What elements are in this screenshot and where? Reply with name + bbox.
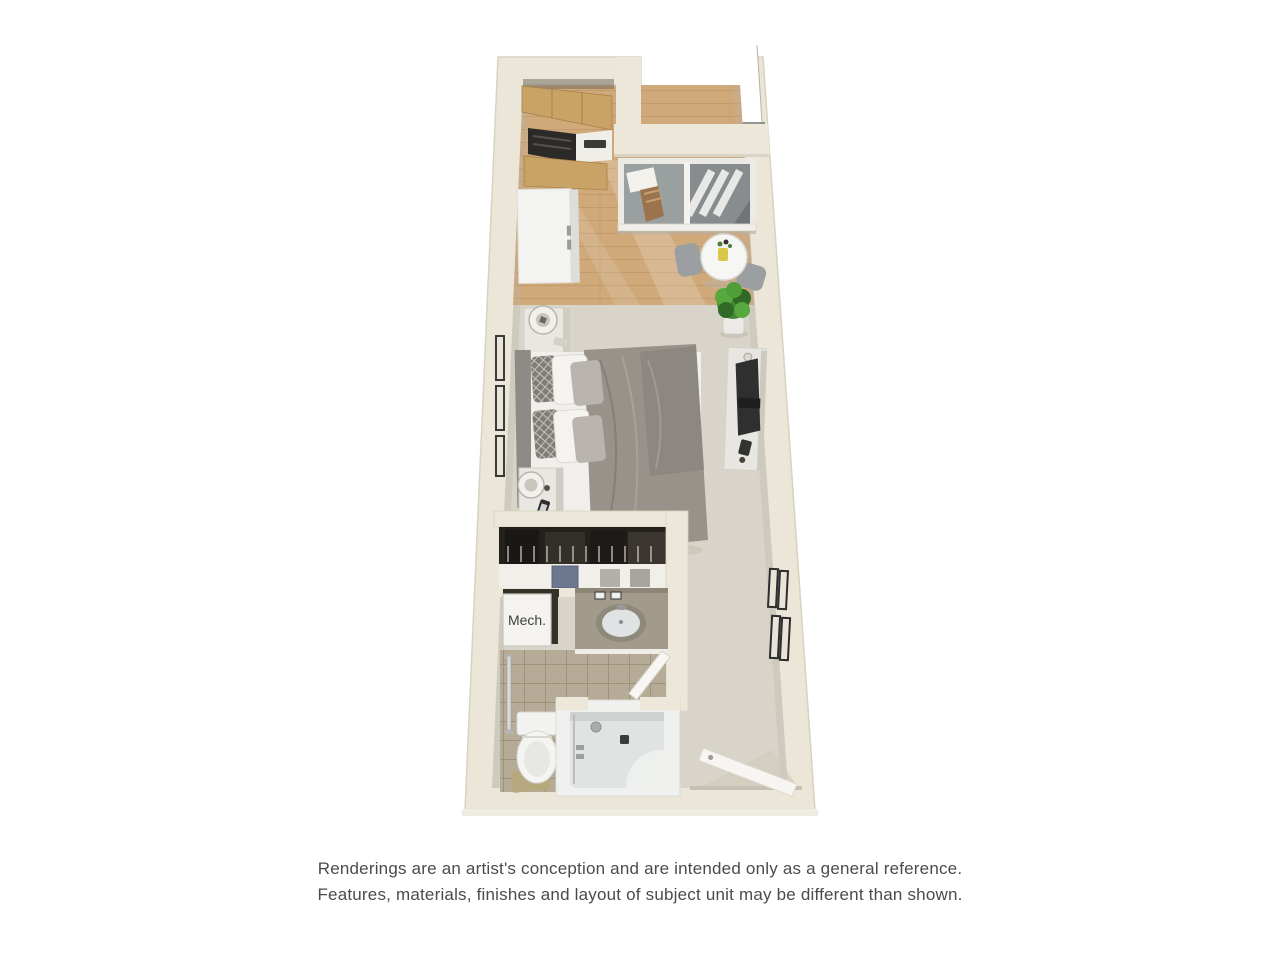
console-item bbox=[744, 353, 752, 361]
tub-wall-stub bbox=[640, 697, 680, 710]
floor-plan-page: Mech. bbox=[0, 0, 1280, 960]
fridge-handle bbox=[567, 226, 571, 236]
table-lamp bbox=[529, 306, 557, 334]
flower-vase bbox=[718, 248, 728, 261]
balcony-wall-band bbox=[614, 124, 770, 156]
toilet bbox=[511, 712, 557, 793]
kitchen-balcony-wall bbox=[616, 57, 641, 124]
door-threshold-shadow bbox=[618, 231, 756, 234]
flower bbox=[718, 242, 723, 247]
mechanical-closet: Mech. bbox=[503, 589, 559, 646]
tub-wall-stub bbox=[556, 697, 588, 710]
floor-plan-rendering: Mech. bbox=[0, 0, 1280, 960]
faucet bbox=[617, 605, 626, 610]
door-mullion bbox=[684, 162, 690, 226]
bathroom-vanity bbox=[575, 588, 668, 654]
closet-top-wall bbox=[494, 511, 684, 527]
vanity-light bbox=[611, 592, 621, 599]
table-lamp bbox=[518, 472, 544, 498]
storage-box bbox=[600, 569, 620, 587]
disclaimer-line-2: Features, materials, finishes and layout… bbox=[0, 882, 1280, 908]
mech-label: Mech. bbox=[508, 612, 546, 628]
tub-inner-shadow bbox=[570, 712, 664, 721]
closet bbox=[494, 511, 684, 597]
vanity-light bbox=[595, 592, 605, 599]
door-track bbox=[618, 224, 756, 231]
fridge-handle bbox=[567, 240, 571, 250]
plant-pot bbox=[723, 317, 744, 334]
nightstand-top bbox=[524, 306, 570, 354]
toilet-seat bbox=[524, 741, 550, 777]
refrigerator bbox=[517, 188, 580, 283]
small-item bbox=[544, 485, 550, 491]
flower bbox=[724, 240, 729, 245]
tub-faucet bbox=[576, 754, 584, 759]
shower-head bbox=[591, 722, 601, 732]
sink-drain bbox=[619, 620, 623, 624]
storage-box-blue bbox=[552, 566, 578, 588]
counter-appliance bbox=[584, 140, 606, 148]
tub-faucet bbox=[576, 745, 584, 750]
sliding-glass-door bbox=[618, 158, 756, 234]
tv-console bbox=[724, 347, 767, 470]
vanity-front-edge bbox=[575, 649, 668, 654]
tub-drain bbox=[620, 735, 629, 744]
balcony-wall-band-edge bbox=[614, 154, 770, 157]
tv-stand bbox=[738, 398, 760, 409]
flower bbox=[728, 244, 732, 248]
disclaimer-line-1: Renderings are an artist's conception an… bbox=[0, 856, 1280, 882]
wall-frames-left bbox=[496, 336, 504, 476]
storage-box bbox=[630, 569, 650, 587]
bathroom-right-wall bbox=[666, 511, 688, 711]
unit-drop-shadow bbox=[462, 809, 818, 816]
disclaimer: Renderings are an artist's conception an… bbox=[0, 856, 1280, 908]
